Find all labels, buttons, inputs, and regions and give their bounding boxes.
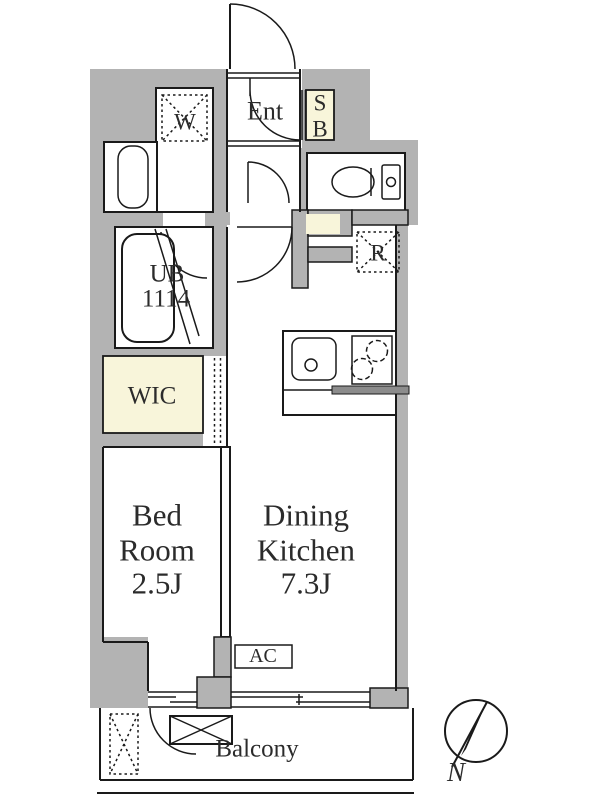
wall-step-1 [214,637,231,677]
bedroom-cavity-lower [148,637,214,677]
vanity-sink [118,146,148,208]
compass-circle [445,700,507,762]
entrance-label: Ent [247,97,284,126]
dk-label-2: Kitchen [257,533,356,568]
wic-label: WIC [128,383,177,410]
meter-box [306,214,340,234]
compass-north-label: N [446,757,467,787]
ac-label: AC [249,645,277,667]
dining-kitchen-cavity [227,225,396,691]
shoe-box-label-top: S [314,91,327,116]
bedroom-label-1: Bed [132,498,182,533]
bedroom-size-label: 2.5J [132,566,183,601]
unit-bath-size-label: 1114 [142,286,191,313]
bedroom-cavity-corner [148,677,197,691]
entrance-door-arc [230,4,295,69]
floor-plan-page: Ent S B W UB 1114 R WIC Bed Room 2.5J Di… [0,0,600,800]
partition-wall [221,447,230,637]
toilet [332,165,400,199]
bath-doorway [163,211,205,228]
balcony-door-arc [150,708,196,754]
bedroom-window-band [148,691,197,708]
balcony-label: Balcony [215,736,299,763]
dk-size-label: 7.3J [281,566,332,601]
balcony-dotted-cross [110,714,138,774]
dk-label-1: Dining [263,498,349,533]
shoe-box-label-bottom: B [312,117,327,142]
wall-hall-column [292,210,308,288]
wall-window-post [370,688,408,708]
wall-stub [308,247,352,262]
dk-window-band [231,691,370,708]
wall-step-2 [197,677,231,708]
toilet-tank [382,165,400,199]
washer-label: W [174,110,196,135]
bedroom-label-2: Room [119,533,195,568]
counter-handle [332,386,409,394]
toilet-bowl [332,167,374,197]
refrigerator-label: R [370,241,386,266]
washer-alcove [156,88,213,212]
floor-plan-drawing: Ent S B W UB 1114 R WIC Bed Room 2.5J Di… [0,0,600,800]
wall-under-toilet-right [352,210,408,225]
unit-bath-label: UB [150,261,185,288]
